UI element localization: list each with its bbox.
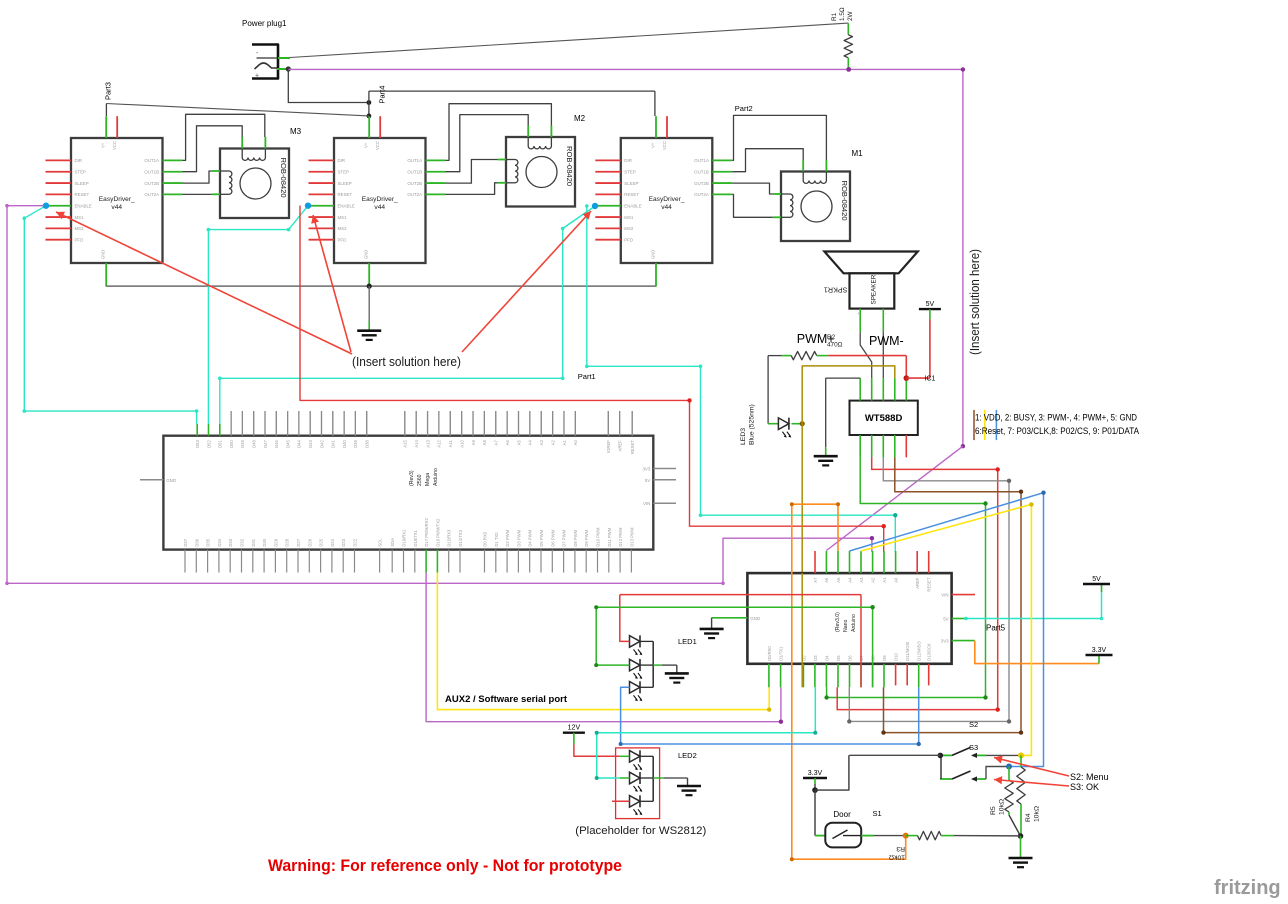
svg-text:GND: GND [166,478,176,483]
svg-text:A13: A13 [425,440,430,448]
svg-text:MS2: MS2 [75,226,85,231]
svg-text:12V: 12V [568,725,581,732]
svg-text:2560: 2560 [417,474,423,486]
svg-text:3V3: 3V3 [642,467,650,472]
svg-text:D4 PWM: D4 PWM [528,529,533,546]
svg-text:5V: 5V [645,478,650,483]
svg-text:D52: D52 [206,440,211,448]
svg-text:A0: A0 [893,577,898,583]
svg-text:D29: D29 [273,538,278,546]
svg-text:Part1: Part1 [578,372,596,381]
svg-text:D1/TX1: D1/TX1 [779,646,784,661]
svg-text:D36: D36 [194,538,199,546]
svg-text:Power plug1: Power plug1 [242,19,287,28]
svg-text:A8: A8 [482,440,487,446]
svg-text:A11: A11 [448,440,453,448]
svg-text:RESET: RESET [624,192,639,197]
svg-text:AUX2 / Software serial port: AUX2 / Software serial port [445,694,567,704]
svg-text:PFD: PFD [75,238,84,243]
svg-text:STEP: STEP [338,170,350,175]
svg-text:D13 PWM: D13 PWM [629,527,634,547]
svg-text:D26: D26 [307,538,312,546]
svg-text:1: VDD, 2: BUSY, 3: PWM-, 4: P: 1: VDD, 2: BUSY, 3: PWM-, 4: PWM+, 5: GN… [975,413,1137,423]
svg-text:D0/RX0: D0/RX0 [767,645,772,660]
svg-text:Mega: Mega [425,473,431,486]
svg-text:ROB-08420: ROB-08420 [279,158,288,198]
svg-text:D34: D34 [217,538,222,546]
svg-text:D2 PWM: D2 PWM [505,529,510,546]
svg-text:D50: D50 [229,440,234,448]
svg-text:ENABLE: ENABLE [624,204,641,209]
svg-text:D6: D6 [848,655,853,661]
svg-text:3V3: 3V3 [941,639,949,644]
svg-text:OUT2B: OUT2B [694,181,709,186]
svg-text:M2: M2 [574,114,586,123]
svg-text:OUT1A: OUT1A [407,158,422,163]
svg-text:D5 PWM: D5 PWM [539,529,544,546]
svg-text:470Ω: 470Ω [827,342,843,349]
svg-text:GND: GND [101,250,106,259]
svg-text:DIR: DIR [338,158,346,163]
svg-text:VCC: VCC [112,141,117,150]
svg-text:R5: R5 [990,806,997,815]
svg-text:D51: D51 [218,440,223,448]
svg-text:D28: D28 [285,538,290,546]
svg-text:A6: A6 [824,577,829,583]
svg-text:D18/TX1: D18/TX1 [413,529,418,546]
svg-text:D42: D42 [319,440,324,448]
svg-text:D5: D5 [836,655,841,661]
svg-text:5V: 5V [1092,576,1101,583]
svg-text:Part3: Part3 [104,82,113,100]
svg-text:fritzing: fritzing [1214,877,1281,899]
svg-text:R1: R1 [831,12,838,21]
svg-text:RESET: RESET [75,192,90,197]
svg-text:3.3V: 3.3V [808,770,823,777]
svg-text:Arduino: Arduino [433,468,439,486]
svg-text:RESET: RESET [630,440,635,454]
svg-text:RESET: RESET [338,192,353,197]
svg-text:D16 PWM/TX2: D16 PWM/TX2 [435,518,440,547]
svg-text:MS2: MS2 [338,226,348,231]
svg-text:5V: 5V [943,617,948,622]
svg-text:AREF: AREF [915,577,920,589]
svg-text:D9: D9 [882,655,887,661]
svg-text:3.3V: 3.3V [1092,647,1107,654]
svg-text:VCC: VCC [375,141,380,150]
svg-text:SPEAKER: SPEAKER [871,274,878,304]
svg-text:+: + [255,73,259,80]
svg-text:D10 PWM: D10 PWM [596,527,601,547]
svg-text:D27: D27 [296,538,301,546]
svg-text:SCL: SCL [378,538,383,547]
svg-text:GND: GND [364,250,369,259]
svg-text:D17 PWM/RX2: D17 PWM/RX2 [424,518,429,547]
svg-text:SLEEP: SLEEP [338,181,352,186]
svg-text:A5: A5 [516,440,521,446]
svg-text:A7: A7 [813,577,818,583]
svg-text:OUT2A: OUT2A [694,192,709,197]
svg-text:(Placeholder for WS2812): (Placeholder for WS2812) [575,825,706,837]
svg-text:EasyDriver_: EasyDriver_ [649,196,685,203]
svg-text:PFD: PFD [338,238,347,243]
svg-text:D1 TX0: D1 TX0 [494,532,499,547]
svg-text:A15: A15 [403,440,408,448]
svg-text:A1: A1 [882,577,887,583]
svg-text:M3: M3 [290,127,302,136]
svg-text:A2: A2 [550,440,555,446]
svg-text:(Insert solution here): (Insert solution here) [967,249,982,355]
svg-text:OUT1B: OUT1B [144,170,159,175]
svg-text:Part2: Part2 [735,104,753,113]
svg-text:Blue (525nm): Blue (525nm) [749,404,756,445]
svg-text:A4: A4 [528,440,533,446]
svg-text:EasyDriver_: EasyDriver_ [99,196,135,203]
svg-text:EasyDriver_: EasyDriver_ [362,196,398,203]
svg-text:D48: D48 [252,440,257,448]
svg-text:A9: A9 [471,440,476,446]
svg-text:A14: A14 [414,440,419,448]
svg-text:D14/TX3: D14/TX3 [458,529,463,546]
svg-text:v44: v44 [374,204,385,211]
svg-text:OUT1A: OUT1A [694,158,709,163]
svg-text:SLEEP: SLEEP [75,181,89,186]
svg-text:D3 PWM: D3 PWM [516,529,521,546]
svg-text:OUT2B: OUT2B [144,181,159,186]
svg-text:(Insert solution here): (Insert solution here) [352,354,461,369]
svg-text:S2: Menu: S2: Menu [1070,772,1109,782]
svg-text:D24: D24 [330,538,335,546]
svg-text:5V: 5V [926,301,935,308]
svg-text:D46: D46 [274,440,279,448]
svg-text:A2: A2 [870,577,875,583]
svg-text:Part4: Part4 [378,86,387,104]
svg-text:S3: OK: S3: OK [1070,782,1099,792]
svg-text:OUT1B: OUT1B [694,170,709,175]
svg-text:GND: GND [650,250,655,259]
svg-text:STEP: STEP [75,170,87,175]
svg-text:D33: D33 [228,538,233,546]
svg-text:OUT2B: OUT2B [407,181,422,186]
svg-text:MS1: MS1 [624,215,634,220]
svg-text:A3: A3 [539,440,544,446]
svg-text:OUT1A: OUT1A [144,158,159,163]
svg-text:10kΩ: 10kΩ [999,799,1006,815]
svg-text:MS1: MS1 [75,215,85,220]
svg-text:D47: D47 [263,440,268,448]
svg-text:D37: D37 [183,538,188,546]
svg-text:10kΩ: 10kΩ [1034,806,1041,822]
svg-text:D30: D30 [262,538,267,546]
svg-text:A5: A5 [836,577,841,583]
svg-text:D40: D40 [342,440,347,448]
svg-text:AREF: AREF [617,440,622,452]
svg-text:Nano: Nano [843,619,849,632]
svg-text:A6: A6 [505,440,510,446]
svg-text:D4: D4 [824,655,829,661]
svg-text:SPKR1: SPKR1 [824,286,848,295]
svg-text:STEP: STEP [624,170,636,175]
svg-text:D8 PWM: D8 PWM [573,529,578,546]
svg-text:D43: D43 [308,440,313,448]
svg-text:Part5: Part5 [986,624,1006,633]
svg-text:D39: D39 [353,440,358,448]
svg-text:v44: v44 [661,204,672,211]
svg-text:SDA: SDA [390,538,395,547]
svg-text:D13/SCK: D13/SCK [927,643,932,661]
svg-text:D25: D25 [319,538,324,546]
svg-text:A10: A10 [459,440,464,448]
svg-text:ENABLE: ENABLE [75,204,92,209]
svg-text:DIR: DIR [624,158,632,163]
svg-text:A7: A7 [494,440,499,446]
svg-text:SLEEP: SLEEP [624,181,638,186]
svg-text:ROB-08420: ROB-08420 [565,146,574,186]
svg-text:VCC: VCC [662,141,667,150]
svg-text:D6 PWM: D6 PWM [550,529,555,546]
svg-text:IC1: IC1 [925,376,936,383]
svg-text:Warning: For reference only -: Warning: For reference only - Not for pr… [268,856,622,875]
svg-text:A12: A12 [437,440,442,448]
svg-text:RESET: RESET [927,577,932,591]
svg-text:1.5Ω: 1.5Ω [839,7,846,21]
svg-text:V+: V+ [101,142,106,148]
svg-text:ROB-08420: ROB-08420 [840,181,849,221]
svg-text:D3: D3 [813,655,818,661]
svg-text:A3: A3 [859,577,864,583]
svg-text:V+: V+ [650,142,655,148]
svg-text:V+: V+ [364,142,369,148]
svg-text:OUT1B: OUT1B [407,170,422,175]
svg-text:S2: S2 [969,720,978,729]
svg-text:GND: GND [750,616,760,621]
svg-text:2W: 2W [847,10,854,21]
svg-text:D38: D38 [365,440,370,448]
svg-text:D0 RX0: D0 RX0 [483,531,488,546]
svg-text:(Rev3.0): (Rev3.0) [835,612,841,632]
svg-text:D49: D49 [240,440,245,448]
svg-text:ENABLE: ENABLE [338,204,355,209]
svg-text:PWM-: PWM- [869,334,904,348]
svg-text:DIR: DIR [75,158,83,163]
svg-text:D23: D23 [341,538,346,546]
svg-text:D35: D35 [206,538,211,546]
svg-text:D19/RX1: D19/RX1 [402,529,407,547]
svg-text:D45: D45 [285,440,290,448]
svg-text:M1: M1 [852,149,864,158]
svg-text:LED2: LED2 [678,751,697,760]
svg-text:(Rev3): (Rev3) [409,470,415,486]
svg-text:MS2: MS2 [624,226,634,231]
svg-text:VIN: VIN [643,501,650,506]
svg-text:IOREF: IOREF [606,440,611,453]
svg-text:D44: D44 [297,440,302,448]
svg-text:D32: D32 [240,538,245,546]
svg-text:S1: S1 [873,809,882,818]
svg-text:D12/MISO: D12/MISO [917,641,922,661]
svg-text:R2: R2 [827,334,836,341]
svg-text:Door: Door [833,810,851,819]
svg-text:v44: v44 [111,204,122,211]
svg-text:+: + [857,311,860,316]
svg-text:D10: D10 [894,652,899,660]
svg-text:A4: A4 [847,577,852,583]
svg-text:D12 PWM: D12 PWM [618,527,623,547]
svg-text:D41: D41 [331,440,336,448]
svg-text:D31: D31 [251,538,256,546]
svg-text:MS1: MS1 [338,215,348,220]
svg-text:WT588D: WT588D [865,413,903,424]
svg-text:OUT2A: OUT2A [144,192,159,197]
svg-text:D7 PWM: D7 PWM [562,529,567,546]
svg-text:PFD: PFD [624,238,633,243]
svg-text:LED1: LED1 [678,637,697,646]
svg-text:D11/MOSI: D11/MOSI [905,642,910,661]
svg-text:10kΩ: 10kΩ [889,854,905,861]
svg-text:D11 PWM: D11 PWM [607,527,612,546]
svg-text:Arduino: Arduino [851,614,857,632]
svg-text:6:Reset, 7: P03/CLK,8: P02/CS,: 6:Reset, 7: P03/CLK,8: P02/CS, 9: P01/DA… [975,426,1140,436]
svg-text:D53: D53 [195,440,200,448]
svg-text:R4: R4 [1025,813,1032,822]
svg-text:OUT2A: OUT2A [407,192,422,197]
svg-text:D15/RX3: D15/RX3 [447,529,452,547]
svg-text:D22: D22 [353,538,358,546]
svg-text:VIN: VIN [941,593,948,598]
svg-text:A1: A1 [562,440,567,446]
svg-text:A0: A0 [573,440,578,446]
svg-text:D9 PWM: D9 PWM [584,529,589,546]
svg-text:LED3: LED3 [740,428,747,445]
svg-text:R3: R3 [896,845,905,852]
